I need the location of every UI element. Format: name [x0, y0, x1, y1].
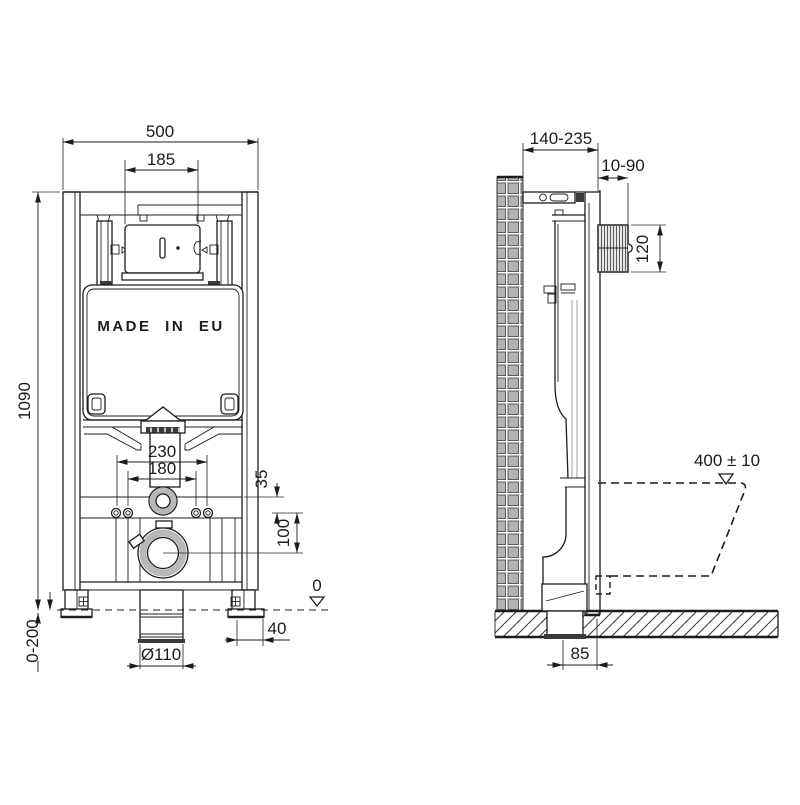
- dim-10-90-group: 10-90: [598, 156, 645, 224]
- cistern-tank: MADE IN EU: [83, 285, 243, 420]
- tank-made-in-label: MADE IN EU: [97, 318, 224, 335]
- dim-flush-window-width: 185: [147, 150, 175, 169]
- dim-leg-adjustment: 0-200: [23, 619, 42, 662]
- dim-o110-group: Ø110: [127, 644, 196, 669]
- drain-pipe: [138, 590, 185, 643]
- cistern-side-profile: [542, 210, 587, 639]
- dim-overall-width: 500: [146, 122, 174, 141]
- frame-right-rail: [242, 192, 258, 590]
- dim-outlet-drop: 100: [274, 519, 293, 547]
- wall-bracket-rod: [523, 192, 575, 203]
- dim-actuator-depth: 10-90: [601, 156, 644, 175]
- dim-foot-offset: 40: [268, 619, 287, 638]
- dim-100-group: 100: [274, 513, 300, 553]
- dim-1090-group: 1090: [15, 192, 60, 610]
- dim-outlet-diameter: Ø110: [141, 645, 181, 664]
- dim-140-235-group: 140-235: [523, 129, 598, 192]
- dim-outlet-offset: 85: [571, 644, 590, 663]
- dim-40-group: 40: [225, 619, 290, 646]
- dim-frame-depth: 140-235: [530, 129, 592, 148]
- bend-housing: [542, 584, 587, 611]
- dim-floor-level: 0: [312, 576, 321, 595]
- dim-bowl-rim-height: 400 ± 10: [694, 451, 760, 470]
- dim-120-group: 120: [631, 225, 666, 272]
- dim-actuator-height: 120: [633, 235, 652, 263]
- bowl-rim-height-marker: 400 ± 10: [694, 451, 760, 484]
- dim-supply-offset: 35: [252, 470, 271, 489]
- dim-overall-height: 1090: [15, 382, 34, 420]
- flush-access-window: [122, 225, 203, 280]
- level-marker-icon: [310, 597, 324, 606]
- finished-wall: [497, 177, 523, 611]
- frame-left-rail: [63, 192, 80, 590]
- front-view: 500 185 1090: [15, 122, 330, 672]
- flush-actuator-plate: [598, 225, 632, 272]
- technical-drawing: 500 185 1090: [0, 0, 800, 800]
- side-view: 140-235 10-90: [495, 129, 778, 670]
- drawing-canvas: 500 185 1090: [0, 0, 800, 800]
- dim-fixing-spread-inner: 180: [148, 459, 176, 478]
- frame-side-profile: [575, 190, 600, 615]
- floor-level-marker: 0: [310, 576, 324, 606]
- wc-bowl-outline: [596, 483, 745, 594]
- dim-185-group: 185: [125, 150, 198, 224]
- floor-slab: [495, 611, 778, 637]
